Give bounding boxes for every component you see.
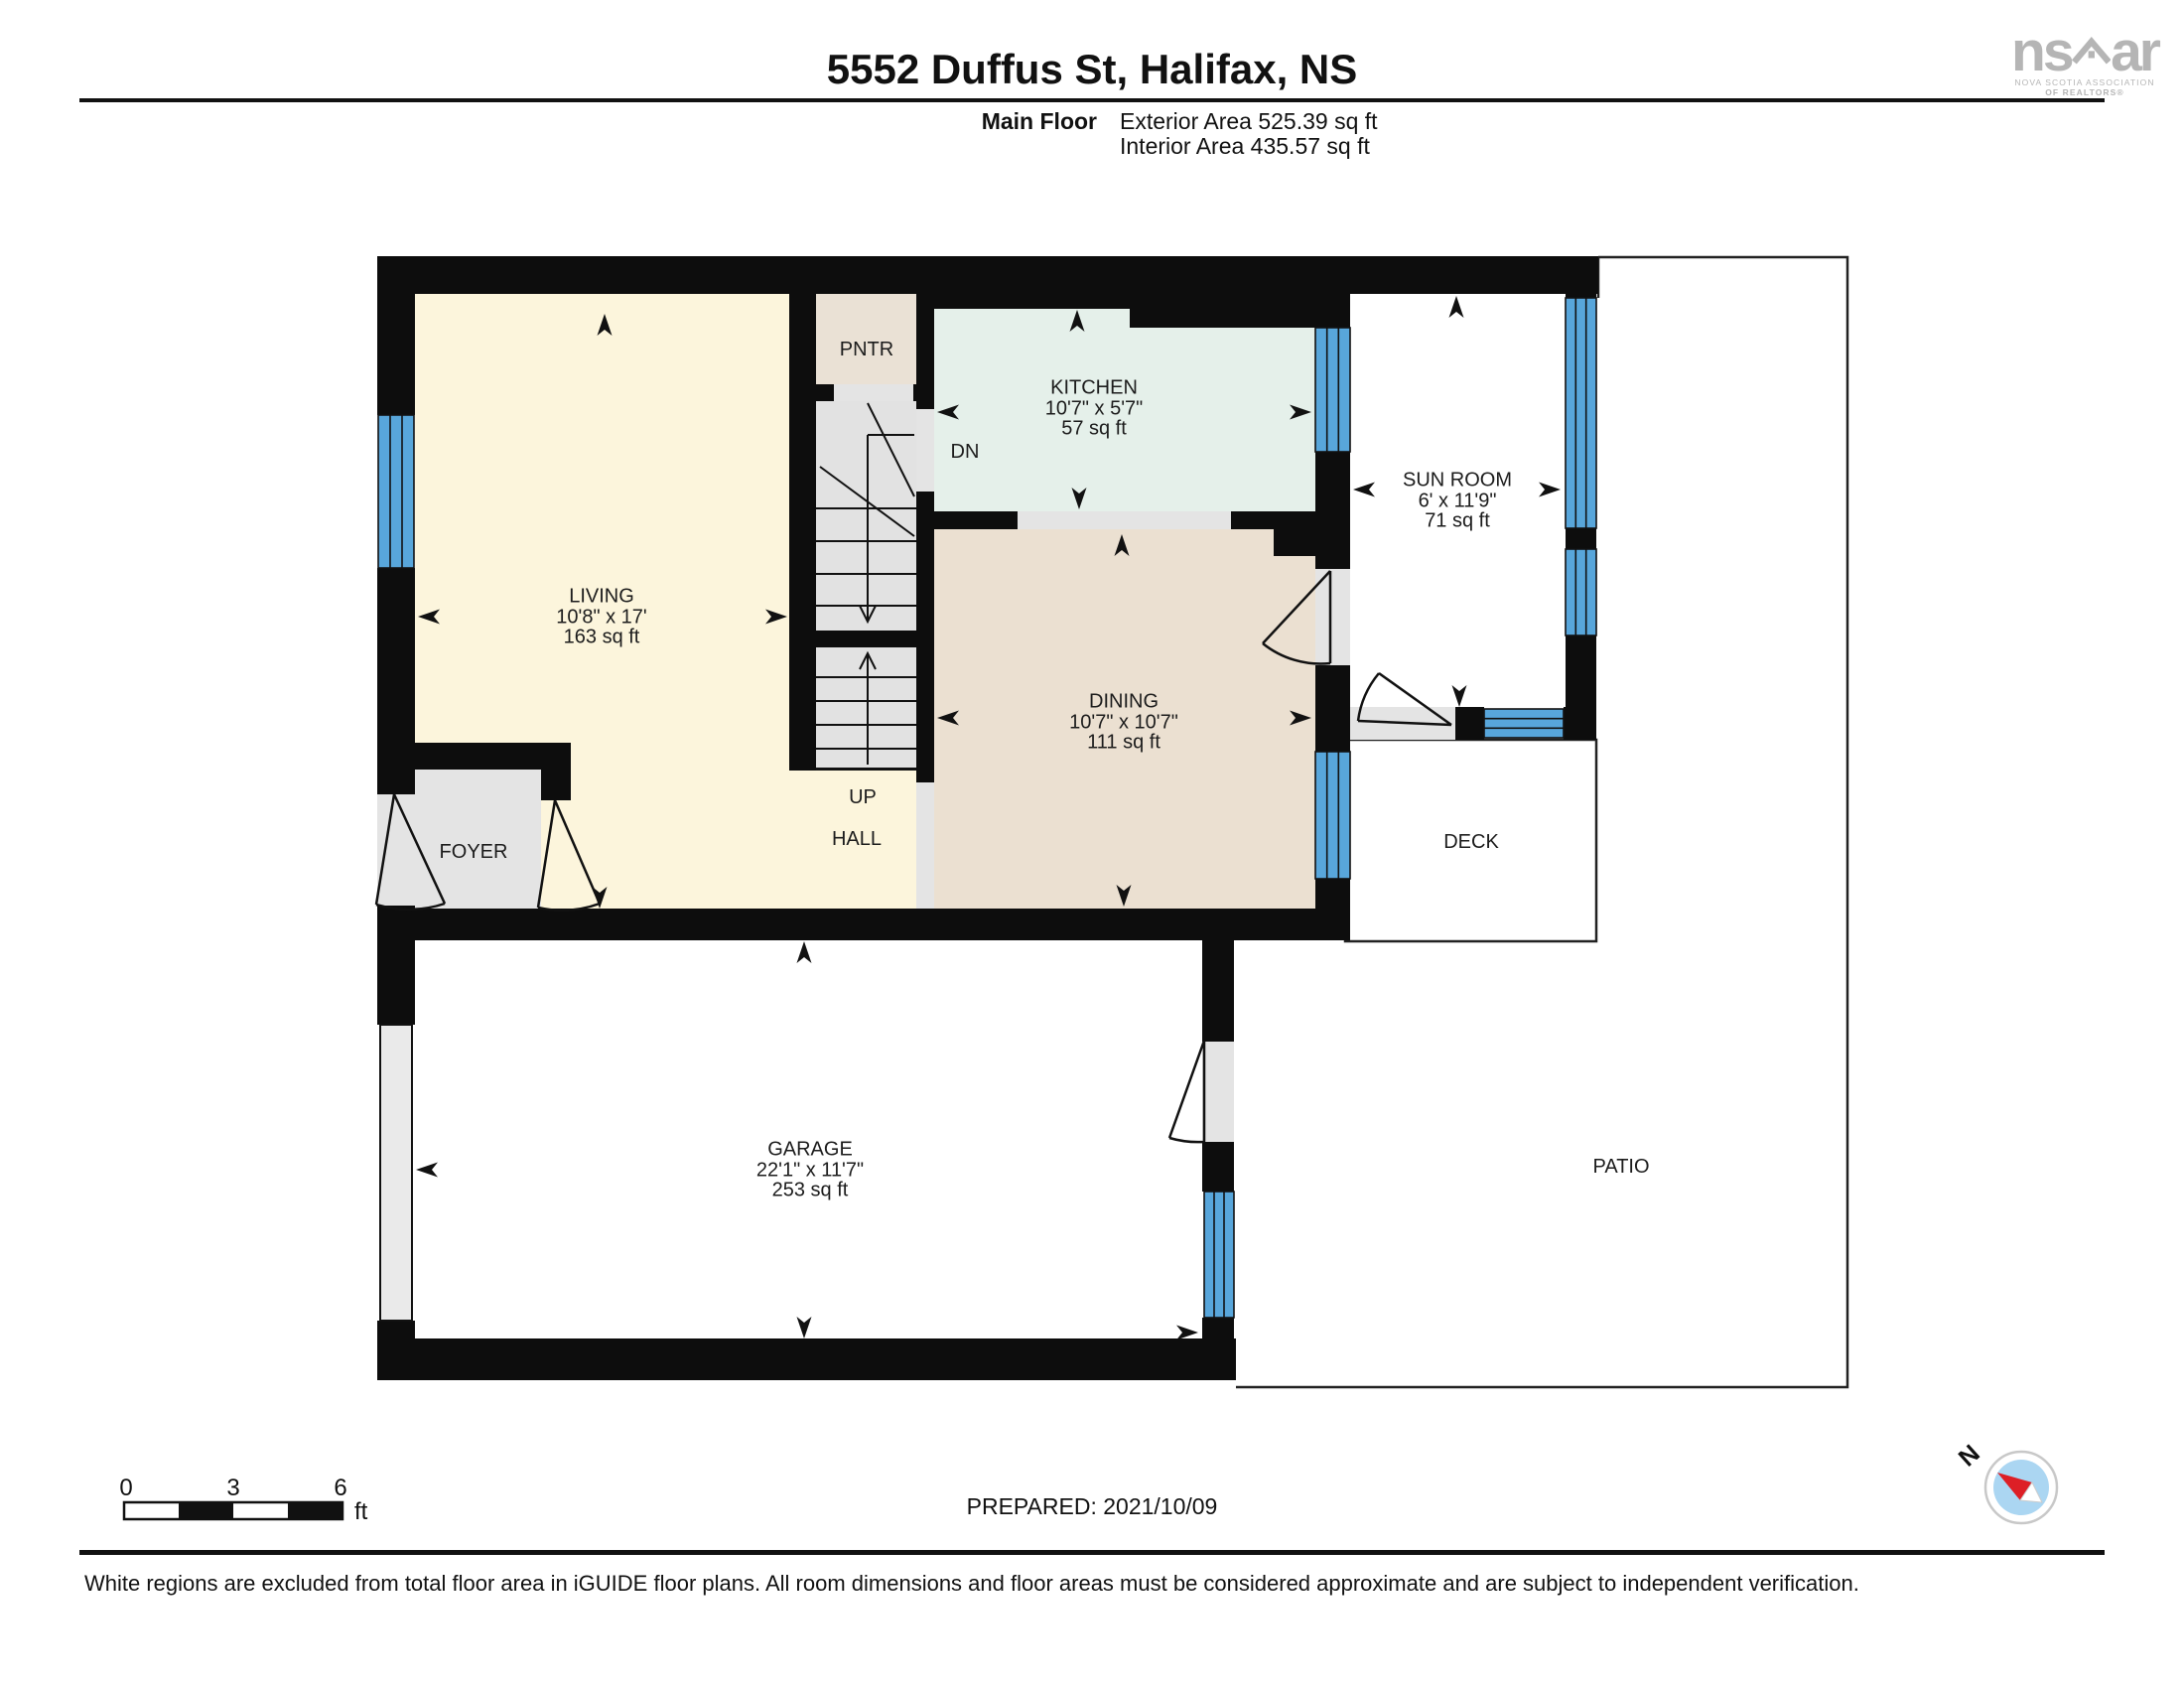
arrow-left-icon: [1353, 483, 1375, 497]
disclaimer-text: White regions are excluded from total fl…: [84, 1571, 2100, 1597]
window-icon: [1315, 752, 1350, 879]
window-icon: [1315, 328, 1350, 452]
deck-label: DECK: [1443, 832, 1499, 853]
arrow-up-icon: [1449, 296, 1464, 318]
foyer-floor: [415, 770, 541, 909]
patio-label: PATIO: [1592, 1157, 1649, 1178]
living-room-label: LIVING10'8" x 17'163 sq ft: [556, 586, 646, 647]
arrow-left-icon: [416, 1163, 438, 1178]
window-icon: [1484, 709, 1564, 738]
stairs-dn-label: DN: [951, 442, 980, 463]
garage-door-icon: [380, 1025, 412, 1321]
floor-plan-page: 5552 Duffus St, Halifax, NS Main Floor E…: [0, 0, 2184, 1688]
window-icon: [1204, 1192, 1234, 1318]
window-icon: [1566, 549, 1596, 635]
dining-room-label: DINING10'7" x 10'7"111 sq ft: [1069, 691, 1178, 753]
door-swing-icon: [1169, 1041, 1204, 1142]
prepared-date: PREPARED: 2021/10/09: [0, 1493, 2184, 1520]
stairs-lower-floor: [816, 647, 916, 771]
arrow-down-icon: [1452, 685, 1467, 707]
floor-plan-drawing: [0, 0, 2184, 1688]
arrow-right-icon: [1176, 1326, 1198, 1340]
arrow-right-icon: [1539, 483, 1561, 497]
pantry-label: PNTR: [840, 340, 893, 360]
foyer-label: FOYER: [440, 842, 508, 863]
window-icon: [1566, 298, 1596, 528]
window-icon: [378, 415, 414, 568]
kitchen-label: KITCHEN10'7" x 5'7"57 sq ft: [1045, 377, 1144, 439]
hall-label: HALL: [832, 829, 882, 850]
arrow-down-icon: [797, 1317, 812, 1338]
footer-divider: [79, 1550, 2105, 1555]
sun-room-label: SUN ROOM6' x 11'9"71 sq ft: [1403, 470, 1512, 531]
stairs-up-label: UP: [849, 787, 877, 808]
garage-label: GARAGE22'1" x 11'7"253 sq ft: [756, 1139, 864, 1200]
arrow-up-icon: [797, 941, 812, 963]
